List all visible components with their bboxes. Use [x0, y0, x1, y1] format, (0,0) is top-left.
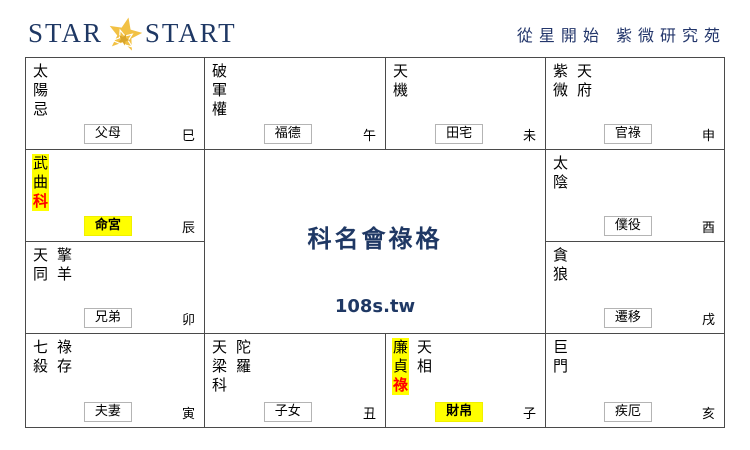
- star-char: 天: [392, 62, 409, 81]
- palace-label: 兄弟: [84, 308, 132, 328]
- palace-cell-si: 太陽忌 父母 巳: [26, 58, 205, 150]
- star-char: 擎: [56, 246, 73, 265]
- star-list: 武曲科: [32, 154, 49, 211]
- palace-label: 父母: [84, 124, 132, 144]
- palace-label: 田宅: [435, 124, 483, 144]
- star-char: 相: [416, 357, 433, 376]
- star-char: 陀: [235, 338, 252, 357]
- palace-cell-hai: 巨門 疾厄 亥: [546, 334, 725, 428]
- palace-label: 財帛: [435, 402, 483, 422]
- branch-label: 酉: [702, 217, 715, 236]
- star-char: 門: [552, 357, 569, 376]
- branch-label: 申: [702, 125, 715, 144]
- star-char: 科: [211, 376, 228, 395]
- branch-label: 子: [523, 403, 536, 422]
- star-char: 紫: [552, 62, 569, 81]
- pattern-title: 科名會祿格: [205, 219, 545, 254]
- star-char: 忌: [32, 100, 49, 119]
- branch-label: 辰: [182, 217, 195, 236]
- palace-label: 遷移: [604, 308, 652, 328]
- logo-text-right: START: [145, 20, 237, 47]
- branch-label: 戌: [702, 309, 715, 328]
- star-list: 紫微天府: [552, 62, 593, 100]
- star-column: 天府: [576, 62, 593, 100]
- star-column: 七殺: [32, 338, 49, 376]
- palace-cell-chen: 武曲科 命宮 辰: [26, 150, 205, 242]
- branch-label: 午: [363, 125, 376, 144]
- star-char: 貞: [392, 357, 409, 376]
- branch-label: 亥: [702, 403, 715, 422]
- star-char: 天: [416, 338, 433, 357]
- transformation-char: 祿: [392, 376, 409, 395]
- palace-label: 命宮: [84, 216, 132, 236]
- star-column: 破軍權: [211, 62, 228, 119]
- transformation-char: 科: [32, 192, 49, 211]
- star-list: 七殺祿存: [32, 338, 73, 376]
- branch-label: 丑: [363, 403, 376, 422]
- star-char: 機: [392, 81, 409, 100]
- star-list: 天同擎羊: [32, 246, 73, 284]
- star-column: 巨門: [552, 338, 569, 376]
- star-char: 陽: [32, 81, 49, 100]
- star-list: 天梁科陀羅: [211, 338, 252, 395]
- logo-text-left: STAR: [28, 20, 103, 47]
- star-icon: [105, 15, 143, 53]
- star-char: 破: [211, 62, 228, 81]
- palace-label: 夫妻: [84, 402, 132, 422]
- star-char: 七: [32, 338, 49, 357]
- palace-cell-chou: 天梁科陀羅 子女 丑: [205, 334, 386, 428]
- palace-label: 疾厄: [604, 402, 652, 422]
- star-column: 紫微: [552, 62, 569, 100]
- star-char: 祿: [56, 338, 73, 357]
- star-char: 天: [211, 338, 228, 357]
- star-char: 狼: [552, 265, 569, 284]
- star-char: 府: [576, 81, 593, 100]
- star-column: 太陽忌: [32, 62, 49, 119]
- star-char: 存: [56, 357, 73, 376]
- star-char: 軍: [211, 81, 228, 100]
- palace-label: 福德: [264, 124, 312, 144]
- chart-center-area: 科名會祿格 108s.tw: [205, 150, 546, 334]
- branch-label: 寅: [182, 403, 195, 422]
- ziwei-chart-grid: 太陽忌 父母 巳 破軍權 福德 午 天機 田宅 未 紫微天府 官祿 申 武曲科 …: [25, 57, 725, 428]
- palace-label: 僕役: [604, 216, 652, 236]
- star-char: 羅: [235, 357, 252, 376]
- site-url: 108s.tw: [205, 296, 545, 317]
- branch-label: 巳: [182, 125, 195, 144]
- star-char: 貪: [552, 246, 569, 265]
- star-char: 太: [552, 154, 569, 173]
- star-char: 天: [576, 62, 593, 81]
- star-column: 太陰: [552, 154, 569, 192]
- palace-cell-xu: 貪狼 遷移 戌: [546, 242, 725, 334]
- star-list: 貪狼: [552, 246, 569, 284]
- star-char: 武: [32, 154, 49, 173]
- palace-label: 子女: [264, 402, 312, 422]
- palace-cell-wu: 破軍權 福德 午: [205, 58, 386, 150]
- star-column: 天機: [392, 62, 409, 100]
- star-list: 天機: [392, 62, 409, 100]
- star-char: 廉: [392, 338, 409, 357]
- star-char: 羊: [56, 265, 73, 284]
- star-column: 天相: [416, 338, 433, 376]
- star-char: 天: [32, 246, 49, 265]
- branch-label: 卯: [182, 309, 195, 328]
- star-char: 陰: [552, 173, 569, 192]
- star-column: 天梁科: [211, 338, 228, 395]
- star-char: 曲: [32, 173, 49, 192]
- palace-cell-shen: 紫微天府 官祿 申: [546, 58, 725, 150]
- palace-label: 官祿: [604, 124, 652, 144]
- branch-label: 未: [523, 125, 536, 144]
- star-column: 擎羊: [56, 246, 73, 284]
- site-title: 從星開始 紫微研究苑: [517, 22, 726, 46]
- star-column: 祿存: [56, 338, 73, 376]
- ziwei-page: STAR START 從星開始 紫微研究苑 太陽忌 父母 巳 破軍權 福德 午 …: [0, 0, 750, 450]
- palace-cell-zi: 廉貞祿天相 財帛 子: [386, 334, 546, 428]
- palace-cell-you: 太陰 僕役 酉: [546, 150, 725, 242]
- star-list: 破軍權: [211, 62, 228, 119]
- star-column: 貪狼: [552, 246, 569, 284]
- star-column: 武曲科: [32, 154, 49, 211]
- logo: STAR START: [28, 14, 237, 52]
- star-list: 廉貞祿天相: [392, 338, 433, 395]
- star-column: 陀羅: [235, 338, 252, 376]
- star-char: 同: [32, 265, 49, 284]
- star-list: 巨門: [552, 338, 569, 376]
- star-column: 廉貞祿: [392, 338, 409, 395]
- star-list: 太陰: [552, 154, 569, 192]
- palace-cell-mao: 天同擎羊 兄弟 卯: [26, 242, 205, 334]
- star-char: 殺: [32, 357, 49, 376]
- star-char: 太: [32, 62, 49, 81]
- palace-cell-yin: 七殺祿存 夫妻 寅: [26, 334, 205, 428]
- star-char: 梁: [211, 357, 228, 376]
- star-list: 太陽忌: [32, 62, 49, 119]
- star-char: 權: [211, 100, 228, 119]
- star-char: 巨: [552, 338, 569, 357]
- palace-cell-wei: 天機 田宅 未: [386, 58, 546, 150]
- star-column: 天同: [32, 246, 49, 284]
- star-char: 微: [552, 81, 569, 100]
